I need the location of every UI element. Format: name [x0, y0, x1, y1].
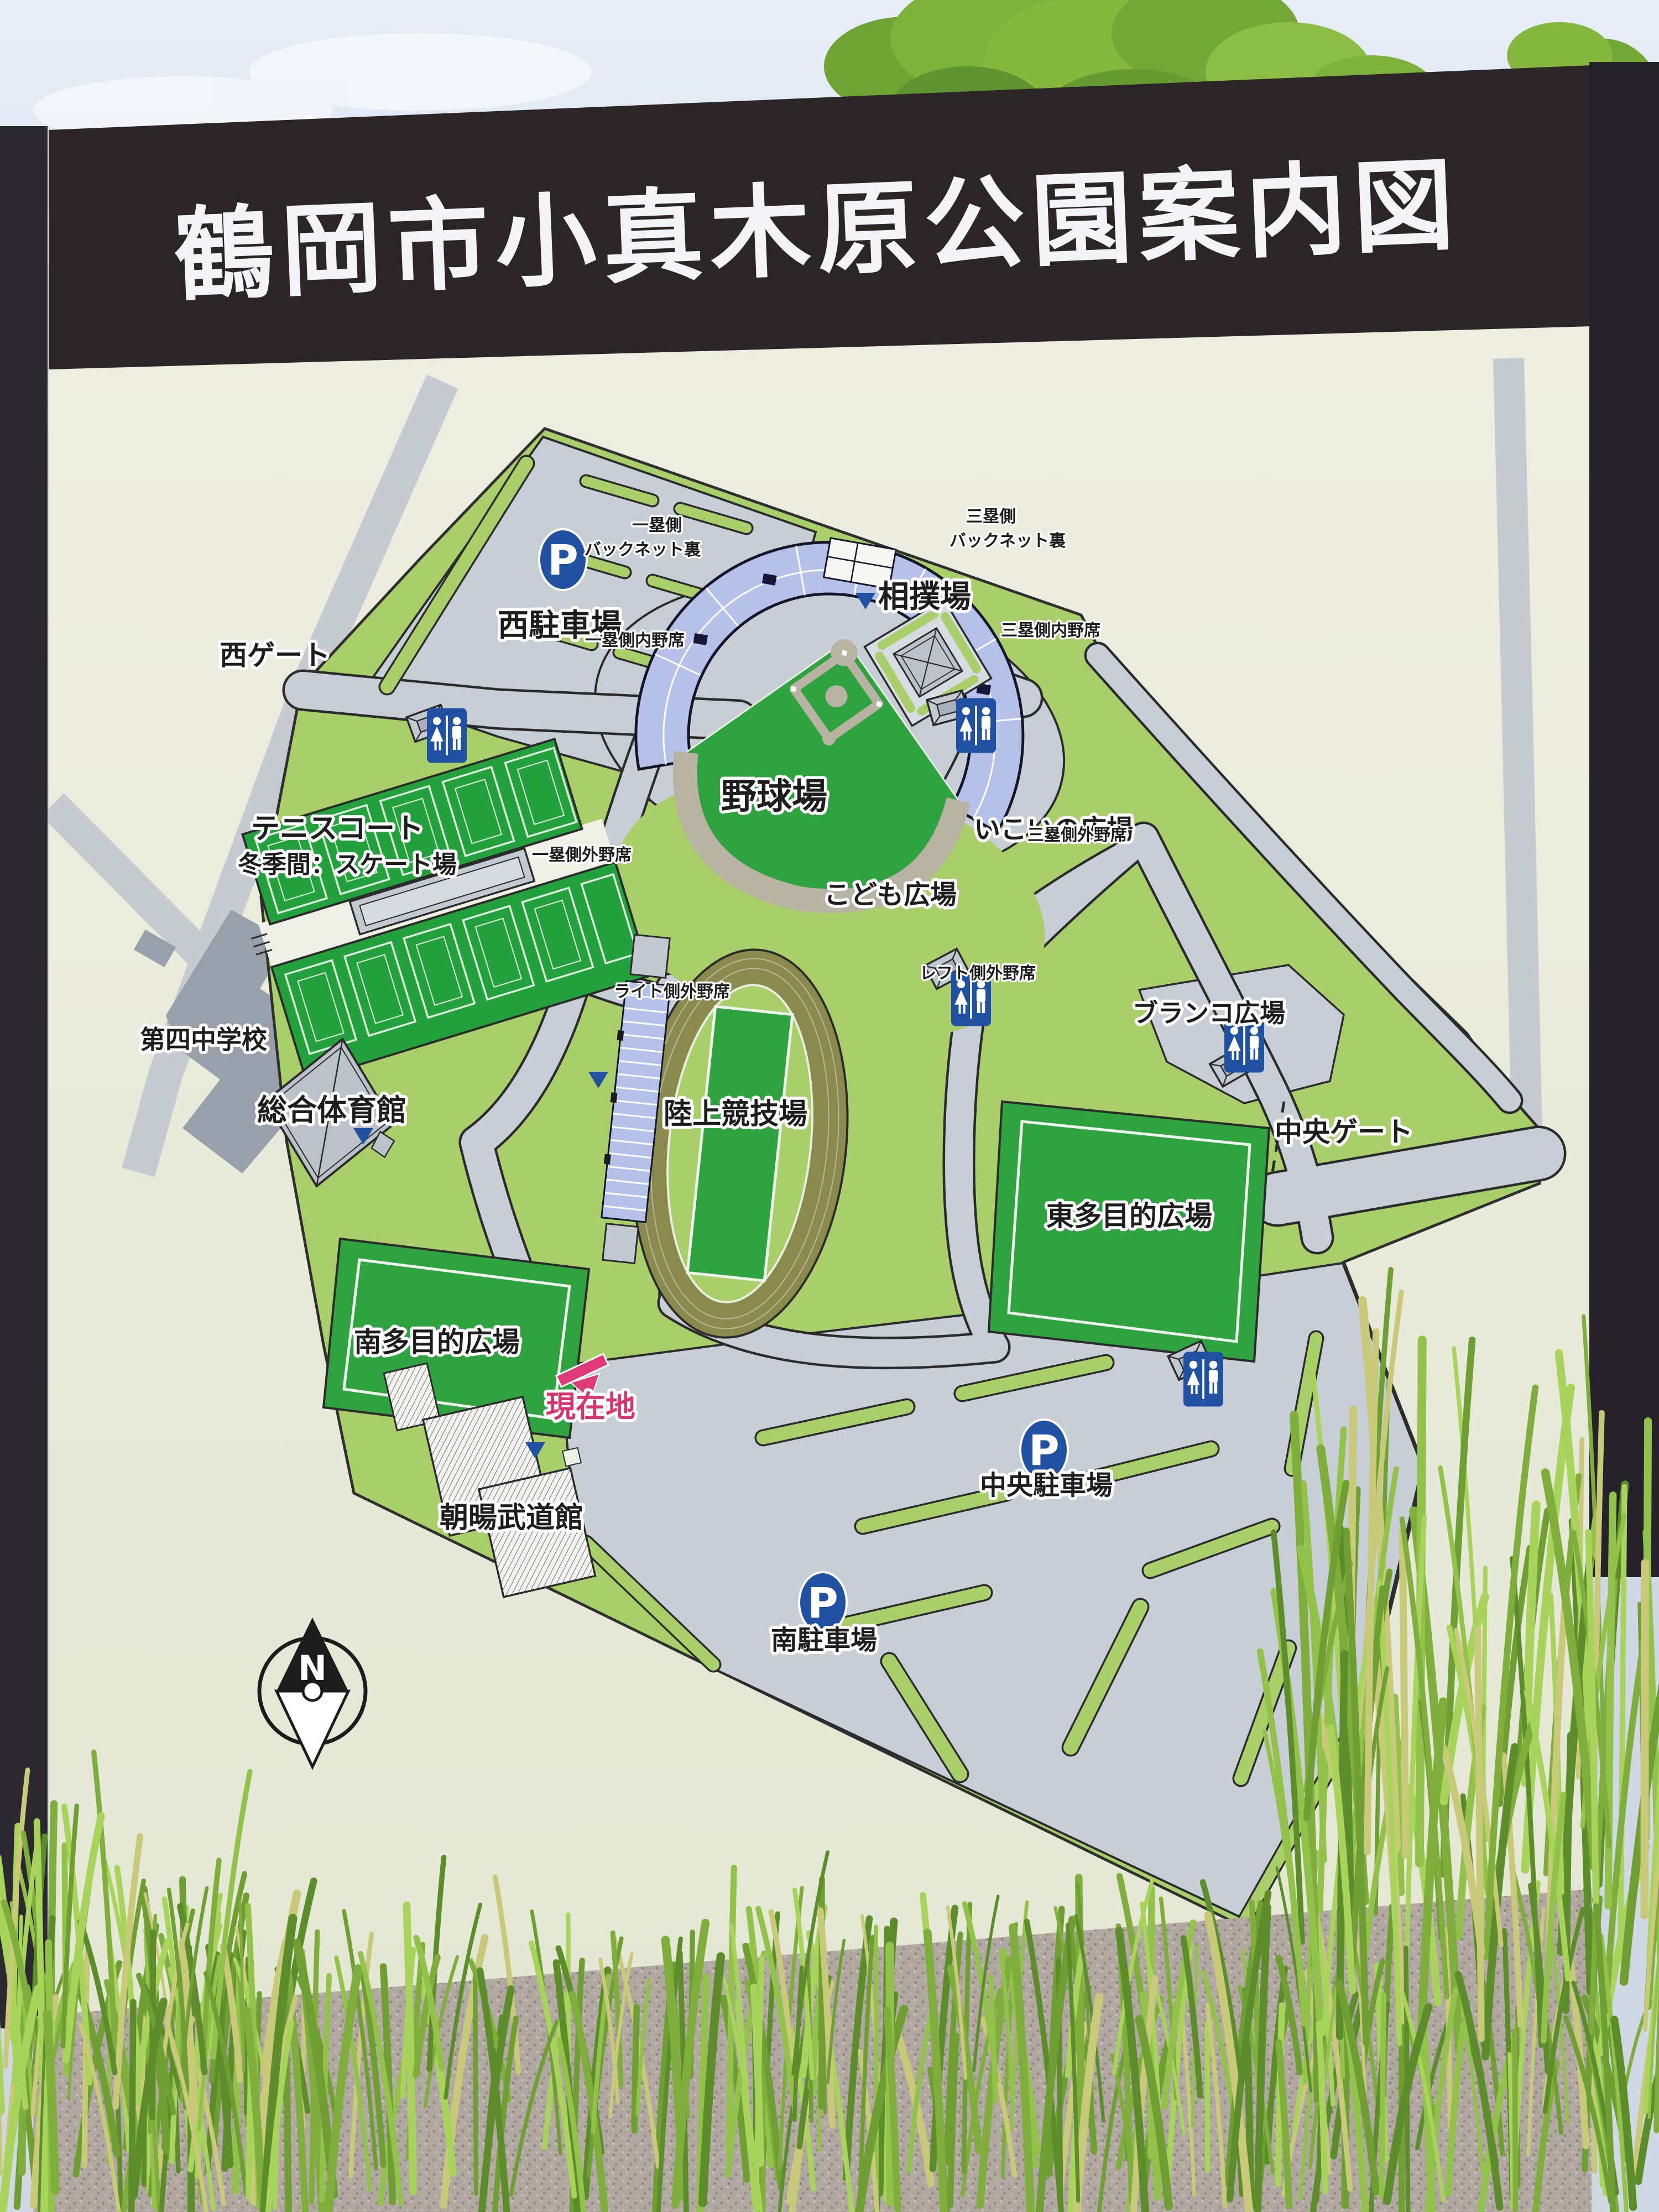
grass-blade: [876, 1927, 877, 2206]
label-current-location: 現在地: [546, 1389, 635, 1424]
toilet-icon: [1183, 1352, 1223, 1407]
label-south-parking: 南駐車場: [771, 1625, 877, 1656]
label-tennis-winter: 冬季間：スケート場: [238, 851, 457, 879]
grass-blade: [1515, 2031, 1515, 2209]
label-south-field: 南多目的広場: [354, 1326, 520, 1358]
label-3b-backnet-1: 三塁側: [966, 507, 1016, 526]
left-post: [0, 126, 48, 2028]
toilet-icon: [427, 708, 467, 763]
label-3b-infield: 三塁側内野席: [1001, 621, 1100, 640]
compass-north-label: N: [298, 1648, 327, 1688]
label-1b-backnet-1: 一塁側: [632, 516, 682, 535]
label-central-parking: 中央駐車場: [980, 1470, 1113, 1501]
label-west-gate: 西ゲート: [220, 639, 330, 671]
label-school: 第四中学校: [140, 1025, 267, 1055]
label-3b-backnet-2: バックネット裏: [950, 531, 1066, 551]
grass-blade: [1402, 1531, 1406, 1855]
photo-of-park-sign: P: [0, 0, 1659, 2212]
label-sumo: 相撲場: [878, 579, 971, 615]
label-track: 陸上競技場: [664, 1098, 807, 1131]
label-baseball: 野球場: [721, 776, 827, 817]
parking-icon: [539, 529, 587, 590]
label-east-field: 東多目的広場: [1046, 1200, 1212, 1232]
toilet-icon: [956, 698, 996, 753]
grass-blade: [1645, 1563, 1645, 1915]
label-budokan: 朝暘武道館: [440, 1501, 583, 1535]
grass-blade: [1381, 1995, 1384, 2196]
grass-blade: [1478, 1630, 1481, 2039]
label-1b-outfield: 一塁側外野席: [532, 846, 632, 865]
label-1b-infield: 一塁側内野席: [585, 631, 685, 650]
label-kids-plaza: こども広場: [824, 879, 957, 910]
label-left-outfield: レフト側外野席: [920, 964, 1036, 983]
grass-blade: [475, 1971, 476, 2194]
label-central-gate: 中央ゲート: [1275, 1116, 1413, 1148]
label-right-outfield: ライト側外野席: [614, 982, 730, 1001]
label-tennis-court: テニスコート: [251, 812, 424, 846]
right-post: [1589, 62, 1659, 1577]
label-gymnasium: 総合体育館: [257, 1093, 406, 1128]
label-3b-outfield: 三塁側外野席: [1027, 826, 1127, 845]
label-swing-plaza: ブランコ広場: [1133, 998, 1285, 1028]
parking-icon: [799, 1572, 847, 1633]
label-1b-backnet-2: バックネット裏: [585, 540, 701, 560]
